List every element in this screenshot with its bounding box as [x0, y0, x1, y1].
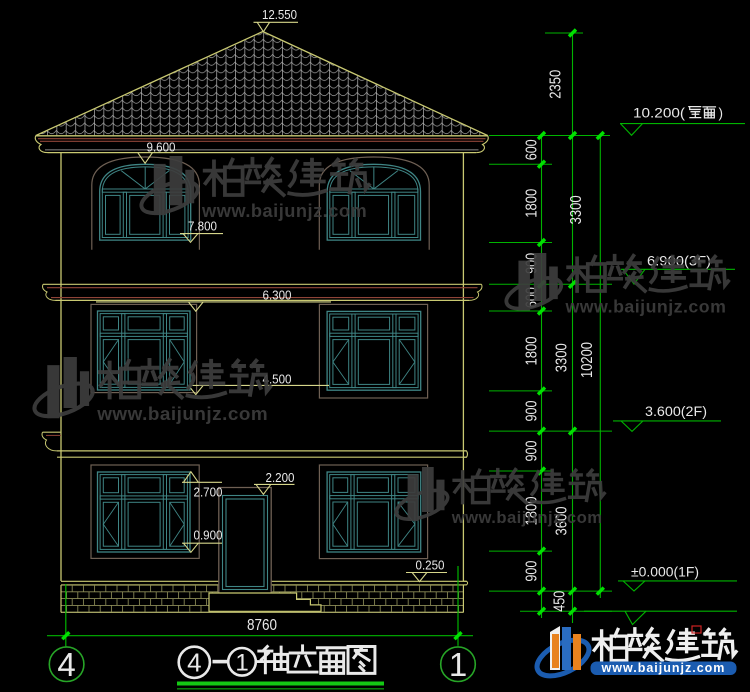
svg-text:2.700: 2.700 [194, 484, 223, 499]
svg-text:www.baijunjz.com: www.baijunjz.com [601, 661, 726, 675]
svg-text:10200: 10200 [579, 342, 596, 378]
svg-text:900: 900 [524, 561, 541, 582]
svg-text:www.baijunjz.com: www.baijunjz.com [451, 508, 603, 527]
svg-text:www.baijunjz.com: www.baijunjz.com [564, 297, 726, 317]
svg-text:8760: 8760 [247, 617, 277, 634]
svg-text:0.250: 0.250 [416, 558, 445, 573]
svg-text:1800: 1800 [524, 336, 541, 365]
svg-text:900: 900 [524, 440, 541, 461]
svg-text:0.900: 0.900 [194, 528, 223, 543]
svg-text:3.600(2F): 3.600(2F) [645, 404, 707, 419]
svg-text:2.200: 2.200 [266, 470, 295, 485]
svg-text:4: 4 [57, 646, 75, 683]
svg-text:www.baijunjz.com: www.baijunjz.com [96, 403, 268, 424]
svg-text:900: 900 [524, 400, 541, 421]
svg-text:450: 450 [552, 591, 569, 612]
svg-text:9.600: 9.600 [147, 139, 176, 154]
svg-text:): ) [719, 106, 724, 121]
svg-text:10.200(: 10.200( [633, 106, 686, 121]
svg-text:±0.000(1F): ±0.000(1F) [631, 565, 699, 580]
svg-text:6.300: 6.300 [263, 287, 292, 302]
svg-text:12.550: 12.550 [262, 7, 297, 22]
svg-text:1: 1 [235, 650, 248, 677]
svg-text:1800: 1800 [524, 189, 541, 218]
svg-text:4: 4 [187, 648, 201, 678]
svg-text:2350: 2350 [548, 70, 565, 99]
svg-text:600: 600 [524, 139, 541, 160]
svg-text:www.baijunjz.com: www.baijunjz.com [201, 201, 367, 221]
svg-text:1: 1 [449, 646, 467, 683]
svg-text:3300: 3300 [568, 195, 585, 224]
svg-text:3300: 3300 [554, 343, 571, 372]
